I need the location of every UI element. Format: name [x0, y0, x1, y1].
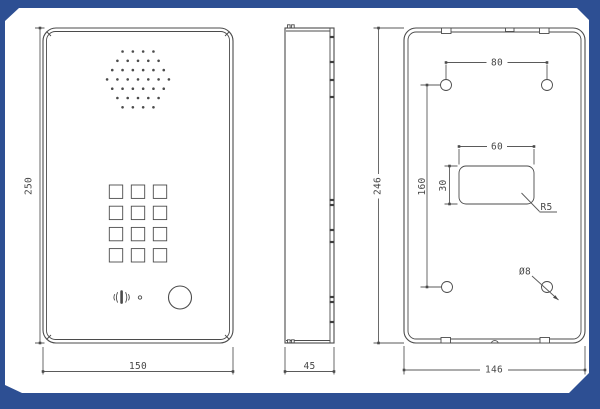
- back-bottom-tabs: [441, 338, 550, 344]
- dim-label-hole-diameter: Ø8: [519, 267, 531, 278]
- front-outline-inner: [47, 32, 230, 340]
- dim-cutout-height: 30: [438, 166, 458, 204]
- back-top-tabs: [442, 28, 550, 34]
- front-corner-seams: [47, 32, 229, 339]
- dim-back-width: 146: [404, 346, 585, 376]
- label-corner-radius: R5: [522, 193, 558, 213]
- call-button-icon: [169, 286, 192, 309]
- speaker-grille-icon: [106, 50, 170, 108]
- dim-label-back-width: 146: [485, 365, 503, 376]
- dim-label-cutout-width: 60: [491, 142, 503, 153]
- back-view: [404, 28, 585, 343]
- dim-label-hole-vertical-spacing: 160: [417, 177, 428, 195]
- speaker-icon: [114, 290, 129, 304]
- mic-hole-icon: [138, 296, 141, 299]
- dim-front-width: 150: [43, 347, 233, 375]
- dim-front-height: 250: [24, 28, 45, 343]
- dim-label-side-depth: 45: [303, 361, 315, 372]
- back-outline-outer: [404, 28, 585, 343]
- dim-label-front-height: 250: [24, 177, 35, 195]
- mount-hole-top-left: [441, 80, 452, 91]
- dimension-terminators: [39, 27, 587, 373]
- dim-label-cutout-height: 30: [438, 179, 449, 191]
- dim-cutout-width: 60: [459, 142, 534, 165]
- front-outline-outer: [43, 28, 233, 343]
- dim-back-height: 246: [373, 28, 405, 343]
- back-top-center-slot: [506, 28, 515, 32]
- dim-label-back-height: 246: [373, 177, 384, 195]
- keypad: [109, 185, 166, 262]
- mount-hole-bottom-left: [442, 282, 453, 293]
- dim-label-top-hole-spacing: 80: [491, 58, 503, 69]
- technical-drawing: 250 150 45 146 246: [0, 0, 600, 409]
- cable-cutout: [459, 166, 534, 204]
- back-outline-inner: [408, 32, 581, 339]
- side-view: [285, 25, 334, 343]
- drawing-sheet: 250 150 45 146 246: [0, 0, 600, 409]
- label-hole-diameter: Ø8: [519, 267, 559, 301]
- side-outline: [285, 28, 334, 343]
- mount-hole-bottom-right: [542, 282, 553, 293]
- mount-hole-top-right: [542, 80, 553, 91]
- dim-top-hole-spacing: 80: [446, 58, 547, 80]
- front-view: [43, 28, 233, 343]
- dim-label-corner-radius: R5: [541, 202, 553, 213]
- dim-side-depth: 45: [285, 347, 334, 375]
- dim-label-front-width: 150: [129, 361, 147, 372]
